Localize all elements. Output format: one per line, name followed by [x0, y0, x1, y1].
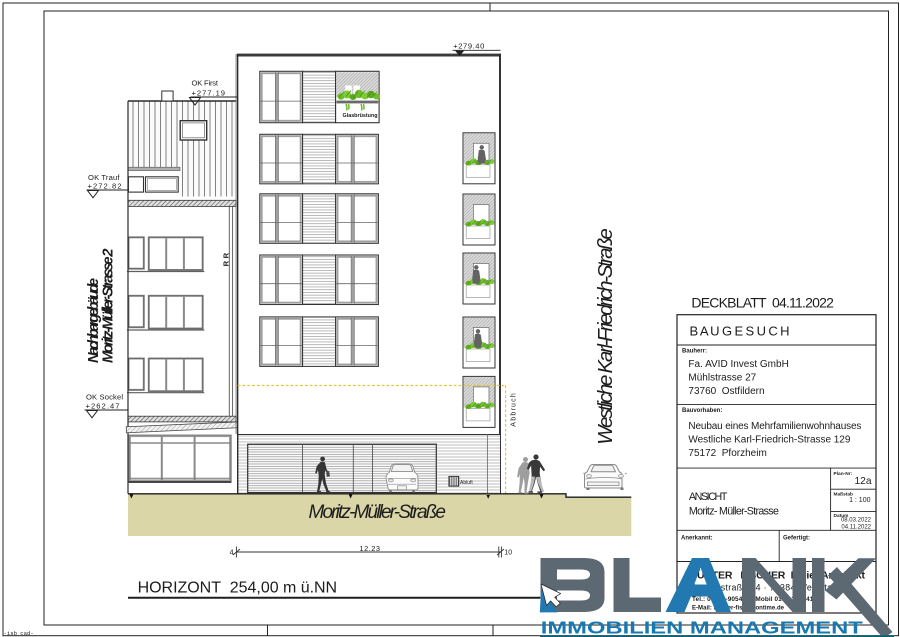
svg-text:+262.47: +262.47: [86, 401, 120, 410]
svg-text:Westliche Karl-Friedrich-Stras: Westliche Karl-Friedrich-Strasse 129: [688, 434, 850, 445]
svg-text:08.03.2022: 08.03.2022: [841, 518, 872, 524]
svg-text:Moritz-Müller-Straße: Moritz-Müller-Straße: [309, 502, 447, 523]
svg-text:IMMOBILIEN MANAGEMENT: IMMOBILIEN MANAGEMENT: [541, 617, 863, 637]
svg-text:OK Sockel: OK Sockel: [86, 392, 123, 401]
svg-text:OK First: OK First: [192, 78, 219, 87]
svg-text:12a: 12a: [855, 476, 872, 487]
svg-text:Westliche Karl-Friedrich-Straß: Westliche Karl-Friedrich-Straße: [594, 228, 617, 445]
svg-text:75172 Pforzheim: 75172 Pforzheim: [688, 448, 766, 459]
svg-text:+277.19: +277.19: [192, 88, 226, 97]
svg-text:B A U G E S U C H: B A U G E S U C H: [690, 324, 790, 339]
svg-text:10: 10: [504, 550, 512, 557]
svg-text:DECKBLATT 04.11.2022: DECKBLATT 04.11.2022: [691, 294, 834, 310]
svg-text:Moritz- Müller-Strasse: Moritz- Müller-Strasse: [689, 506, 779, 518]
svg-text:Abbruch: Abbruch: [511, 393, 518, 427]
svg-text:Gefertigt:: Gefertigt:: [783, 535, 810, 541]
svg-text:Neubau eines Mehrfamilienwohnh: Neubau eines Mehrfamilienwohnhauses: [688, 421, 861, 432]
svg-text:Anerkannt:: Anerkannt:: [681, 535, 713, 541]
svg-text:Moritz-Müller-Strasse 2: Moritz-Müller-Strasse 2: [101, 248, 117, 363]
svg-text:Bauherr:: Bauherr:: [682, 349, 707, 355]
svg-text:4: 4: [230, 548, 234, 557]
svg-text:Glasbrüstung: Glasbrüstung: [343, 113, 378, 119]
svg-text:HORIZONT 254,00 m ü.NN: HORIZONT 254,00 m ü.NN: [138, 580, 338, 597]
svg-text:73760 Ostfildern: 73760 Ostfildern: [688, 386, 764, 397]
svg-text:Abluft: Abluft: [460, 480, 473, 486]
svg-text:+279.40: +279.40: [453, 42, 484, 51]
svg-text:Mühlstrasse 27: Mühlstrasse 27: [688, 373, 756, 384]
svg-text:ANSICHT: ANSICHT: [689, 491, 728, 503]
svg-text:Plan-Nr:: Plan-Nr:: [834, 471, 853, 477]
svg-text:Fa. AVID Invest GmbH: Fa. AVID Invest GmbH: [688, 359, 788, 370]
svg-text:-isb cad-: -isb cad-: [4, 630, 34, 637]
svg-text:E-Mail: fischer-fisch@ontime.d: E-Mail: fischer-fisch@ontime.de: [692, 606, 785, 612]
svg-text:04.11.2022: 04.11.2022: [841, 524, 871, 530]
svg-text:1 : 100: 1 : 100: [849, 497, 871, 504]
svg-text:12.23: 12.23: [360, 544, 381, 553]
svg-text:Bauvorhaben:: Bauvorhaben:: [682, 408, 722, 414]
svg-text:+272.82: +272.82: [88, 181, 122, 190]
